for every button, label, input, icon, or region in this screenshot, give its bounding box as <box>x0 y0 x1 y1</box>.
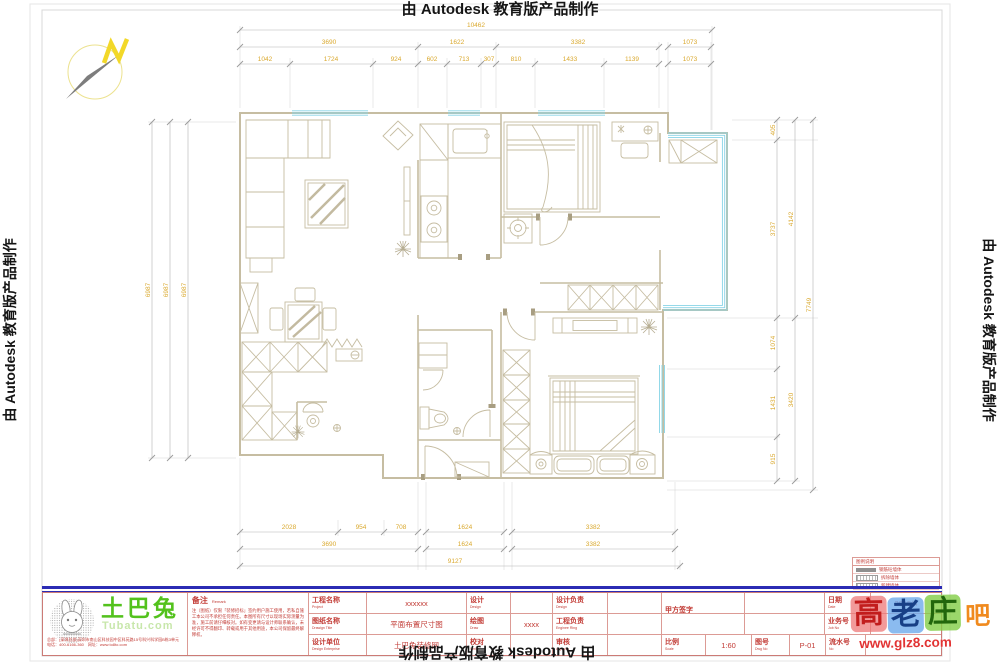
customer-signature-area <box>745 593 825 613</box>
dim-label: 3420 <box>788 392 795 407</box>
dim-label: 1433 <box>563 56 578 63</box>
dim-label: 1431 <box>770 395 777 410</box>
field-project-value: xxxxxx <box>405 599 428 608</box>
desk <box>612 122 658 158</box>
wall-swatch-solid <box>856 568 876 572</box>
field-dwg-label: 图号 <box>755 639 769 647</box>
walls <box>240 113 727 480</box>
dim-label: 1073 <box>683 56 698 63</box>
dim-label: 1074 <box>770 335 777 350</box>
dim-label: 9127 <box>448 558 463 565</box>
wall-legend: 图例说明 钢筋砼墙体 拆除墙体 新建墙体 <box>852 557 940 589</box>
plant-icon <box>395 241 411 257</box>
dim-label: 1139 <box>625 56 639 63</box>
floor-drain <box>453 427 461 435</box>
legend-label: 钢筋砼墙体 <box>879 567 902 573</box>
dim-label: 713 <box>459 56 470 63</box>
plant-icon <box>292 426 305 439</box>
dim-label: 307 <box>484 56 495 63</box>
dim-label: 1073 <box>683 39 698 46</box>
doors <box>423 217 568 478</box>
field-enterprise-label: 设计单位 <box>312 639 340 647</box>
field-drawing-value: 平面布置尺寸图 <box>390 619 443 630</box>
extension-lines <box>148 26 818 570</box>
dim-label: 7749 <box>806 297 813 312</box>
master-tv-cabinet <box>553 318 637 333</box>
floor-plan-canvas: 10462 3690 1622 3382 1073 1042 1724 924 … <box>0 0 1000 667</box>
field-draw-value: xxxx <box>524 620 539 629</box>
dim-label: 954 <box>356 524 367 531</box>
remark-label-en: Remark <box>212 599 226 604</box>
autodesk-banner-bottom: 由 Autodesk 教育版产品制作 <box>399 643 596 664</box>
wc-basin <box>303 403 341 432</box>
toilet <box>420 407 448 429</box>
tv-panel <box>404 167 410 235</box>
field-customer-label: 甲方签字 <box>665 607 693 613</box>
accent-chair <box>383 121 413 150</box>
plant-icon <box>641 319 657 335</box>
dim-label: 6987 <box>163 282 170 297</box>
radiator <box>322 339 362 361</box>
dim-label: 3382 <box>571 39 586 46</box>
remark-text: 注（图纸）仅限「装修招标」签约用户施工使用，若私自施工本公司不承担任何责任。本图… <box>192 608 304 638</box>
dim-label: 1622 <box>450 39 465 46</box>
dim-label: 1042 <box>258 56 273 63</box>
dim-label: 924 <box>391 56 402 63</box>
master-wardrobe <box>503 350 530 473</box>
bathroom-vanity <box>419 343 447 368</box>
field-draw-label: 绘图 <box>470 618 484 626</box>
nightstand <box>630 451 655 474</box>
nightstand <box>530 452 552 475</box>
dim-label: 915 <box>770 453 777 464</box>
master-bed <box>548 376 640 474</box>
dim-label: 3690 <box>322 39 337 46</box>
dim-label: 3690 <box>322 541 337 548</box>
autodesk-banner-top: 由 Autodesk 教育版产品制作 <box>402 0 599 19</box>
bed-secondary <box>504 122 600 212</box>
dim-label: 708 <box>396 524 407 531</box>
furniture <box>240 120 717 477</box>
field-scale-label: 比例 <box>665 639 679 647</box>
dim-label: 1624 <box>458 541 473 548</box>
dim-label: 6987 <box>145 282 152 297</box>
dim-label: 6987 <box>181 282 188 297</box>
sofa <box>246 120 330 272</box>
kitchen-counter <box>420 124 501 258</box>
dim-label: 3382 <box>586 541 601 548</box>
dim-label: 405 <box>770 124 777 135</box>
dim-label: 3737 <box>770 221 777 236</box>
contact-line: 电话：400-6166-360 网址：www.to8to.com <box>47 642 185 647</box>
north-arrow-icon <box>66 39 127 99</box>
dimension-lines <box>152 30 813 566</box>
field-drawing-label: 图纸名称 <box>312 618 340 626</box>
dim-label: 4142 <box>788 211 795 226</box>
dimension-labels: 10462 3690 1622 3382 1073 1042 1724 924 … <box>145 22 813 565</box>
logo-domain: Tubatu.com <box>102 620 174 632</box>
logo-contact: 总部：(深圳总部)深圳市南山区科技园中区科苑路15号科兴科学园B栋3单元 电话：… <box>47 637 185 647</box>
dim-label: 602 <box>427 56 438 63</box>
dim-label: 1724 <box>324 56 339 63</box>
autodesk-banner-left: 由 Autodesk 教育版产品制作 <box>0 238 20 422</box>
sheet-frame <box>30 4 950 661</box>
legend-item: 拆除墙体 <box>853 574 939 582</box>
nightstand <box>504 214 532 243</box>
dim-label: 3382 <box>586 524 601 531</box>
wall-swatch-demolish <box>856 575 878 581</box>
field-project-label: 工程名称 <box>312 597 340 605</box>
field-eng-lead-label: 工程负责 <box>556 618 584 626</box>
field-scale-value: 1:60 <box>721 641 736 650</box>
field-date-value: 2015/4 <box>895 599 918 608</box>
windows <box>292 111 727 433</box>
dim-label: 810 <box>511 56 522 63</box>
dim-label: 2028 <box>282 524 297 531</box>
dimension-ticks <box>149 27 816 569</box>
dining-table <box>270 288 336 342</box>
dim-label: 1624 <box>458 524 473 531</box>
balcony-closet <box>669 140 717 163</box>
remark-cell: 备注Remark 注（图纸）仅限「装修招标」签约用户施工使用，若私自施工本公司不… <box>188 593 309 655</box>
logo-cell: 土巴兔 Tubatu.com 总部：(深圳总部)深圳市南山区科技园中区科苑路15… <box>43 593 188 655</box>
field-job-label: 业务号 <box>828 618 849 626</box>
field-design-label: 设计 <box>470 597 484 605</box>
coffee-table <box>305 180 348 228</box>
field-date-label: 日期 <box>828 597 842 605</box>
legend-title: 图例说明 <box>853 558 939 566</box>
autodesk-banner-right: 由 Autodesk 教育版产品制作 <box>979 238 999 422</box>
field-dwg-value: P-01 <box>800 641 816 650</box>
legend-item: 钢筋砼墙体 <box>853 566 939 574</box>
field-serial-label: 流水号 <box>829 639 850 647</box>
remark-label: 备注 <box>192 596 208 605</box>
logo-name: 土巴兔 <box>101 596 179 620</box>
legend-label: 拆除墙体 <box>881 575 899 581</box>
hall-wardrobe <box>568 285 658 310</box>
dim-label: 10462 <box>467 22 485 29</box>
field-design-lead-label: 设计负责 <box>556 597 584 605</box>
